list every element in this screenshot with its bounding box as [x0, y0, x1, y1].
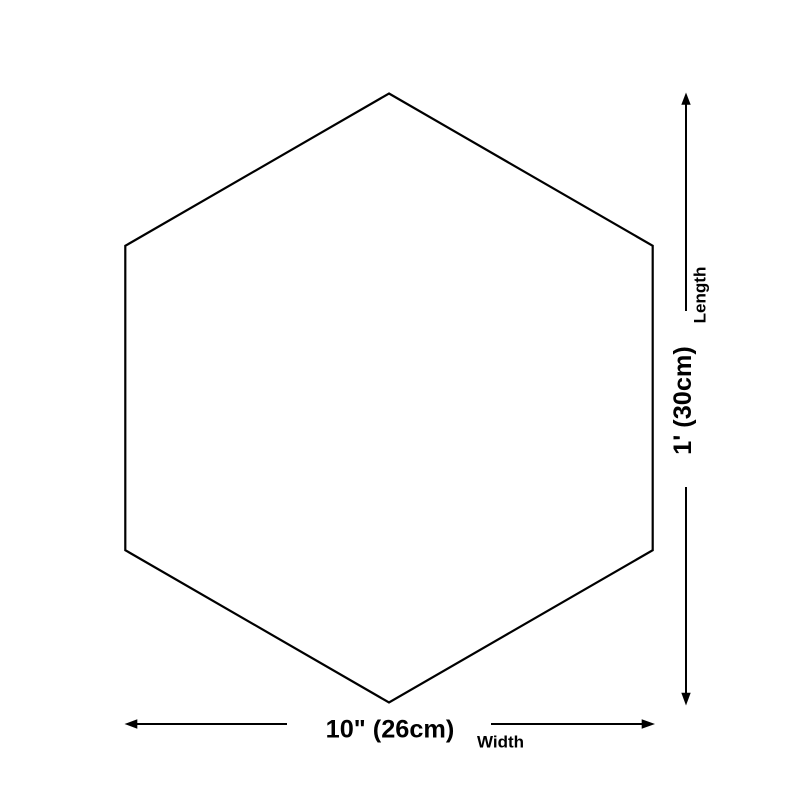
svg-text:Width: Width	[477, 733, 524, 752]
svg-text:Length: Length	[691, 267, 710, 324]
svg-text:10" (26cm): 10" (26cm)	[326, 716, 455, 744]
svg-text:1' (30cm): 1' (30cm)	[669, 346, 697, 455]
